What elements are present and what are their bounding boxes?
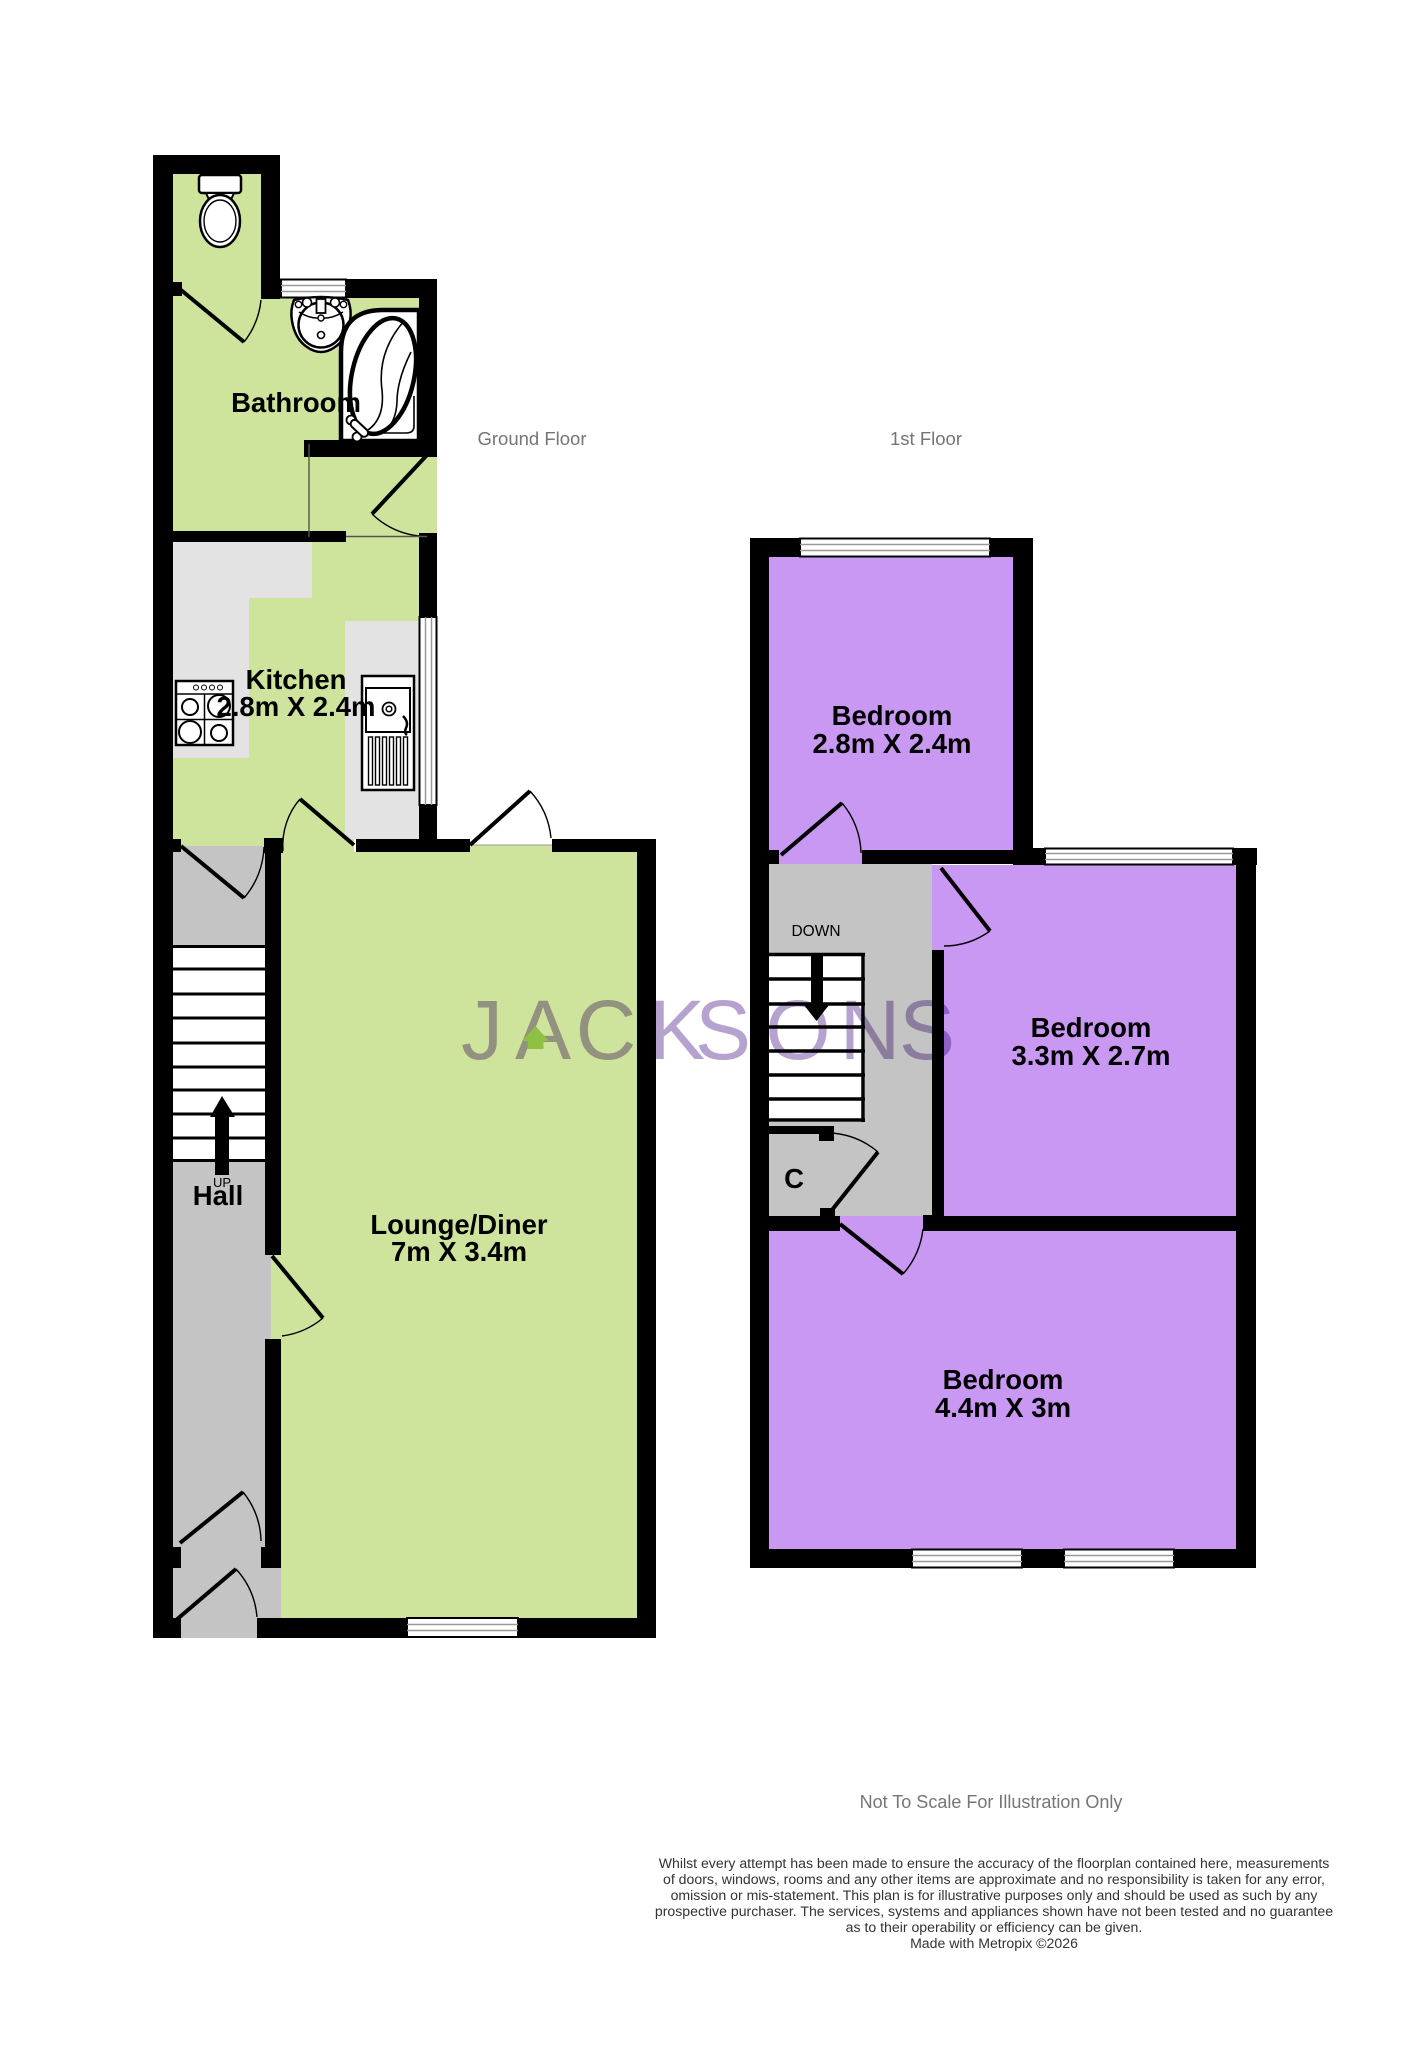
svg-text:Made with Metropix ©2026: Made with Metropix ©2026: [910, 1935, 1078, 1951]
svg-text:Bedroom: Bedroom: [832, 700, 953, 731]
svg-text:Ground Floor: Ground Floor: [478, 428, 587, 449]
svg-text:Not To Scale For Illustration: Not To Scale For Illustration Only: [860, 1792, 1123, 1812]
svg-text:Bathroom: Bathroom: [231, 387, 361, 418]
svg-text:prospective purchaser. The ser: prospective purchaser. The services, sys…: [655, 1903, 1333, 1919]
svg-text:as to their operability or eff: as to their operability or efficiency ca…: [846, 1919, 1143, 1935]
svg-text:2.8m X 2.4m: 2.8m X 2.4m: [813, 728, 972, 759]
svg-text:omission or mis-statement. Thi: omission or mis-statement. This plan is …: [671, 1887, 1319, 1903]
svg-text:Bedroom: Bedroom: [1031, 1012, 1152, 1043]
svg-text:1st Floor: 1st Floor: [890, 428, 962, 449]
svg-text:7m X 3.4m: 7m X 3.4m: [391, 1236, 527, 1267]
svg-text:of doors, windows, rooms and a: of doors, windows, rooms and any other i…: [663, 1871, 1325, 1887]
svg-text:Bedroom: Bedroom: [943, 1364, 1064, 1395]
svg-text:2.8m X 2.4m: 2.8m X 2.4m: [217, 691, 376, 722]
svg-text:Whilst every attempt has been: Whilst every attempt has been made to en…: [659, 1855, 1330, 1871]
svg-text:UP: UP: [213, 1175, 231, 1190]
svg-text:3.3m X 2.7m: 3.3m X 2.7m: [1012, 1040, 1171, 1071]
svg-text:C: C: [784, 1163, 804, 1194]
svg-text:4.4m X 3m: 4.4m X 3m: [935, 1392, 1071, 1423]
svg-text:DOWN: DOWN: [791, 923, 840, 940]
